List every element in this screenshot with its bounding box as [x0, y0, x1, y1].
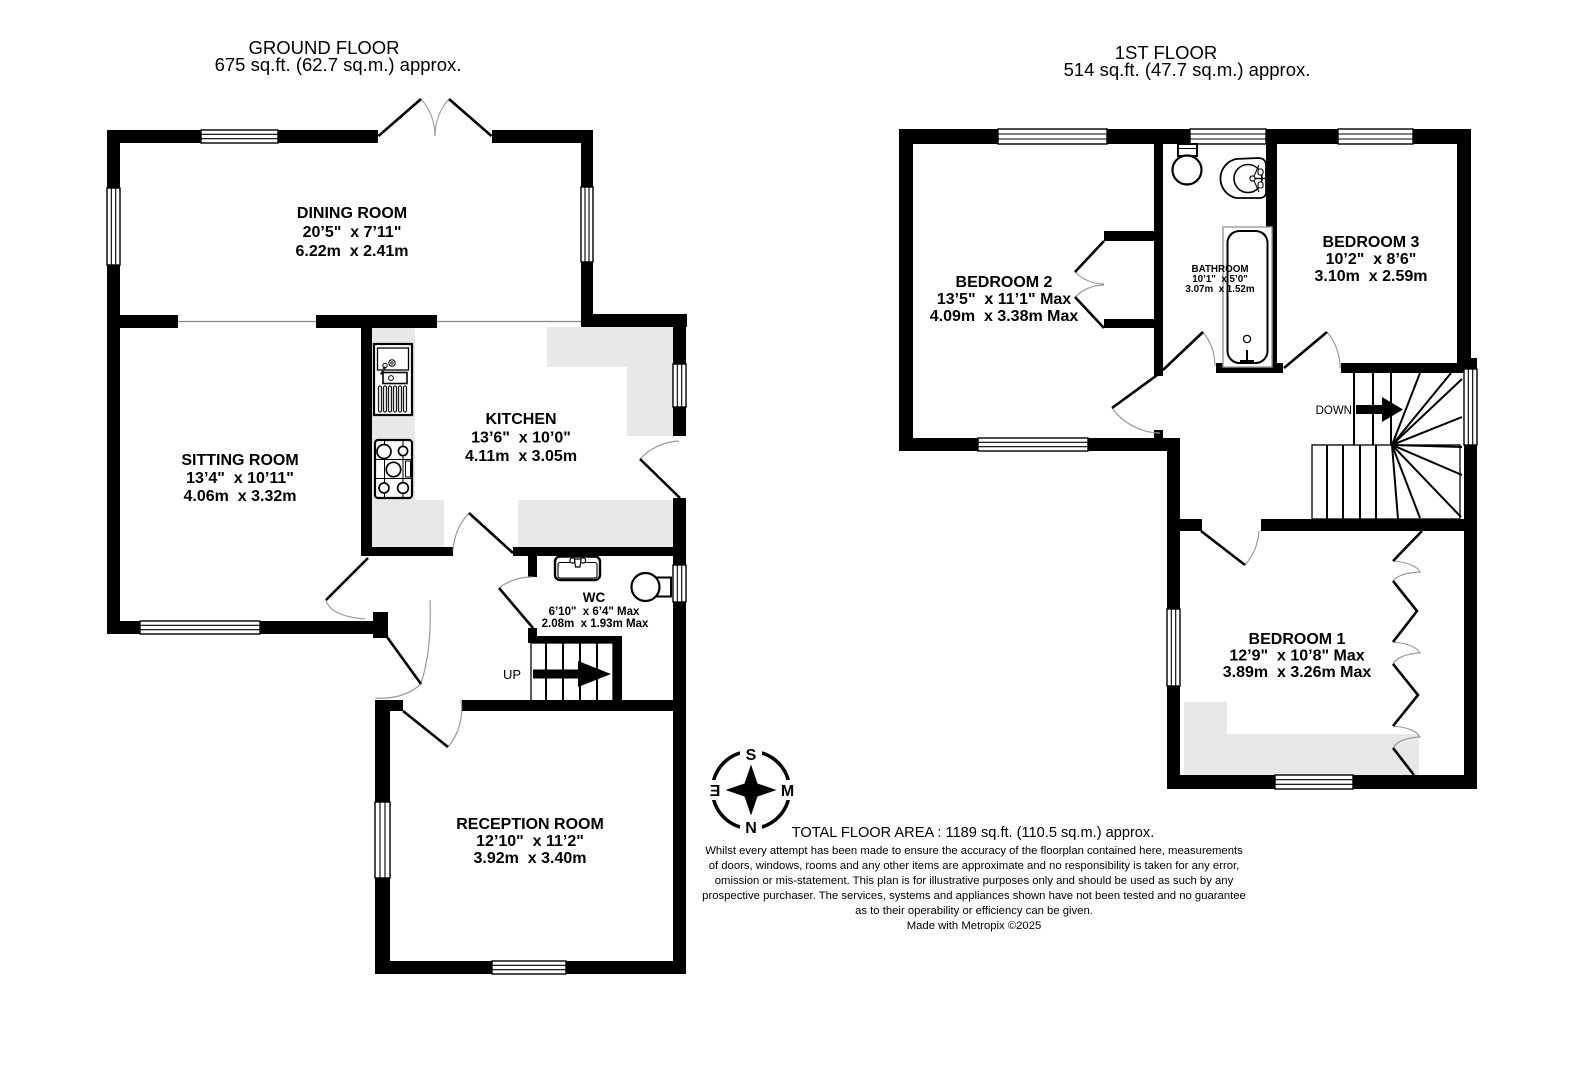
svg-text:TOTAL FLOOR AREA : 1189 sq.ft.: TOTAL FLOOR AREA : 1189 sq.ft. (110.5 sq…: [792, 825, 1155, 841]
svg-text:BEDROOM 3: BEDROOM 3: [1323, 234, 1420, 251]
svg-text:of doors, windows, rooms and a: of doors, windows, rooms and any other i…: [709, 860, 1240, 872]
svg-text:12’9" x 10’8" Max: 12’9" x 10’8" Max: [1229, 648, 1364, 665]
svg-text:Whilst every attempt has been: Whilst every attempt has been made to en…: [705, 845, 1243, 857]
svg-text:BEDROOM 2: BEDROOM 2: [956, 274, 1053, 291]
svg-text:4.06m x 3.32m: 4.06m x 3.32m: [184, 488, 297, 505]
svg-text:Made with Metropix ©2025: Made with Metropix ©2025: [907, 920, 1042, 932]
svg-text:13’6" x 10’0": 13’6" x 10’0": [471, 430, 571, 447]
svg-text:SITTING ROOM: SITTING ROOM: [181, 452, 298, 469]
svg-text:N: N: [745, 820, 757, 837]
svg-text:DOWN: DOWN: [1316, 405, 1352, 417]
svg-text:3.92m x 3.40m: 3.92m x 3.40m: [474, 850, 587, 867]
svg-text:DINING ROOM: DINING ROOM: [297, 205, 407, 222]
svg-text:as to their operability or eff: as to their operability or efficiency ca…: [855, 905, 1093, 917]
svg-text:675 sq.ft. (62.7 sq.m.) approx: 675 sq.ft. (62.7 sq.m.) approx.: [215, 54, 462, 75]
svg-text:2.08m x 1.93m Max: 2.08m x 1.93m Max: [542, 618, 649, 630]
svg-text:RECEPTION ROOM: RECEPTION ROOM: [456, 816, 604, 833]
svg-text:E: E: [709, 783, 720, 800]
svg-text:S: S: [746, 747, 757, 764]
svg-text:4.09m x 3.38m Max: 4.09m x 3.38m Max: [930, 308, 1079, 325]
svg-text:4.11m x 3.05m: 4.11m x 3.05m: [465, 448, 577, 465]
svg-text:514 sq.ft. (47.7 sq.m.) approx: 514 sq.ft. (47.7 sq.m.) approx.: [1064, 59, 1311, 80]
svg-text:KITCHEN: KITCHEN: [485, 411, 556, 428]
svg-text:20’5" x 7’11": 20’5" x 7’11": [303, 224, 402, 241]
svg-text:10’2" x 8’6": 10’2" x 8’6": [1326, 251, 1417, 268]
svg-text:6’10" x 6’4" Max: 6’10" x 6’4" Max: [549, 606, 640, 618]
svg-text:3.10m x 2.59m: 3.10m x 2.59m: [1315, 268, 1428, 285]
svg-text:omission or mis-statement. Thi: omission or mis-statement. This plan is …: [715, 875, 1234, 887]
svg-text:12’10" x 11’2": 12’10" x 11’2": [476, 833, 584, 850]
svg-text:UP: UP: [503, 667, 521, 682]
svg-text:WC: WC: [583, 590, 606, 605]
svg-text:BEDROOM 1: BEDROOM 1: [1249, 631, 1346, 648]
svg-text:3.89m x 3.26m Max: 3.89m x 3.26m Max: [1223, 664, 1372, 681]
svg-text:prospective purchaser. The ser: prospective purchaser. The services, sys…: [702, 890, 1246, 902]
svg-text:3.07m x 1.52m: 3.07m x 1.52m: [1185, 284, 1254, 295]
svg-text:M: M: [781, 783, 794, 800]
svg-text:6.22m x 2.41m: 6.22m x 2.41m: [296, 243, 409, 260]
svg-text:13’5" x 11’1" Max: 13’5" x 11’1" Max: [937, 291, 1071, 308]
svg-text:13’4" x 10’11": 13’4" x 10’11": [186, 470, 294, 487]
